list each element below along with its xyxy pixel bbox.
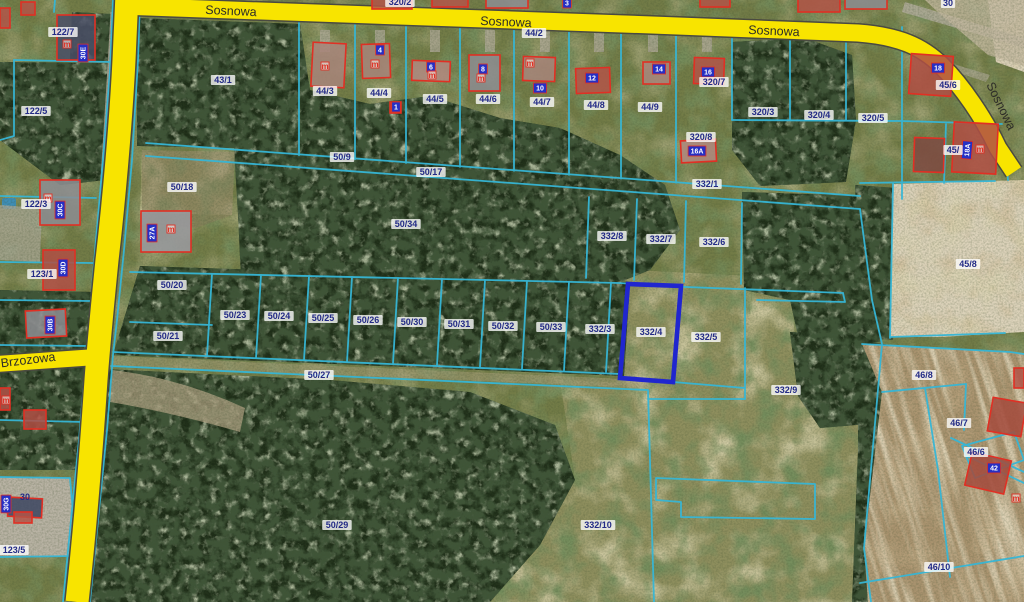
svg-text:50/25: 50/25 <box>312 313 335 323</box>
svg-text:30C: 30C <box>58 204 65 217</box>
svg-text:Sosnowa: Sosnowa <box>748 23 800 39</box>
svg-text:16: 16 <box>704 70 712 77</box>
svg-text:46/7: 46/7 <box>950 418 968 428</box>
svg-text:Sosnowa: Sosnowa <box>480 14 532 30</box>
svg-text:50/27: 50/27 <box>308 370 331 380</box>
svg-text:50/33: 50/33 <box>540 322 563 332</box>
svg-text:122/5: 122/5 <box>25 106 48 116</box>
svg-text:1: 1 <box>394 105 398 112</box>
svg-text:320/3: 320/3 <box>752 107 775 117</box>
svg-text:Sosnowa: Sosnowa <box>205 3 257 19</box>
svg-text:45/6: 45/6 <box>939 80 957 90</box>
svg-text:44/5: 44/5 <box>426 94 444 104</box>
svg-text:18A: 18A <box>964 143 972 156</box>
svg-text:14: 14 <box>655 67 663 74</box>
svg-text:332/3: 332/3 <box>589 324 612 334</box>
svg-text:27A: 27A <box>150 227 157 240</box>
svg-text:m: m <box>976 145 983 154</box>
svg-text:332/8: 332/8 <box>601 231 624 241</box>
svg-text:43/1: 43/1 <box>214 75 232 85</box>
svg-text:42: 42 <box>990 466 998 473</box>
svg-text:320/2: 320/2 <box>389 0 412 7</box>
svg-text:332/1: 332/1 <box>696 179 719 189</box>
svg-text:3: 3 <box>565 1 569 8</box>
svg-text:50/31: 50/31 <box>448 319 471 329</box>
svg-text:18: 18 <box>934 66 942 73</box>
svg-text:12: 12 <box>588 76 596 83</box>
svg-text:30G: 30G <box>4 497 11 511</box>
svg-text:122/3: 122/3 <box>25 199 48 209</box>
svg-text:332/5: 332/5 <box>695 332 718 342</box>
svg-text:m: m <box>526 59 533 68</box>
svg-text:50/32: 50/32 <box>492 321 515 331</box>
svg-text:50/23: 50/23 <box>224 310 247 320</box>
svg-text:123/1: 123/1 <box>31 269 54 279</box>
svg-text:50/20: 50/20 <box>161 280 184 290</box>
svg-text:50/9: 50/9 <box>333 152 351 162</box>
svg-text:16A: 16A <box>691 149 704 156</box>
svg-text:44/3: 44/3 <box>316 86 334 96</box>
svg-text:44/9: 44/9 <box>641 102 659 112</box>
svg-text:332/6: 332/6 <box>703 237 726 247</box>
svg-text:122/7: 122/7 <box>52 27 75 37</box>
svg-text:332/4: 332/4 <box>640 327 663 337</box>
svg-text:4: 4 <box>378 48 382 55</box>
svg-text:46/8: 46/8 <box>915 370 933 380</box>
svg-text:320/7: 320/7 <box>703 77 726 87</box>
svg-text:m: m <box>477 74 484 83</box>
svg-text:m: m <box>2 396 9 405</box>
svg-text:320/5: 320/5 <box>862 113 885 123</box>
svg-text:m: m <box>63 40 70 49</box>
svg-text:50/17: 50/17 <box>420 167 443 177</box>
svg-text:50/30: 50/30 <box>401 317 424 327</box>
svg-text:44/6: 44/6 <box>479 94 497 104</box>
svg-text:10: 10 <box>536 86 544 93</box>
svg-text:m: m <box>321 62 328 71</box>
svg-text:50/18: 50/18 <box>171 182 194 192</box>
svg-text:50/26: 50/26 <box>357 315 380 325</box>
svg-text:123/5: 123/5 <box>3 545 26 555</box>
svg-text:332/10: 332/10 <box>584 520 612 530</box>
svg-text:30E: 30E <box>81 46 88 59</box>
svg-text:332/9: 332/9 <box>775 385 798 395</box>
svg-text:50/21: 50/21 <box>157 331 180 341</box>
svg-text:44/8: 44/8 <box>587 100 605 110</box>
svg-text:30D: 30D <box>61 262 68 275</box>
svg-text:m: m <box>167 225 174 234</box>
svg-text:320/4: 320/4 <box>808 110 831 120</box>
svg-text:8: 8 <box>481 67 485 74</box>
svg-text:30B: 30B <box>48 319 55 332</box>
svg-text:44/2: 44/2 <box>525 28 543 38</box>
svg-text:m: m <box>428 71 435 80</box>
svg-text:46/6: 46/6 <box>967 447 985 457</box>
svg-text:45/: 45/ <box>947 145 960 155</box>
svg-text:46/10: 46/10 <box>928 562 951 572</box>
svg-text:m: m <box>371 60 378 69</box>
svg-text:45/8: 45/8 <box>959 259 977 269</box>
svg-text:30: 30 <box>20 492 30 502</box>
svg-text:50/34: 50/34 <box>395 219 418 229</box>
svg-text:50/29: 50/29 <box>326 520 349 530</box>
svg-text:50/24: 50/24 <box>268 311 291 321</box>
svg-text:44/7: 44/7 <box>533 97 551 107</box>
svg-text:m: m <box>1012 494 1019 503</box>
svg-text:44/4: 44/4 <box>370 88 388 98</box>
svg-text:332/7: 332/7 <box>650 234 673 244</box>
svg-text:30: 30 <box>943 0 953 8</box>
svg-text:320/8: 320/8 <box>690 132 713 142</box>
